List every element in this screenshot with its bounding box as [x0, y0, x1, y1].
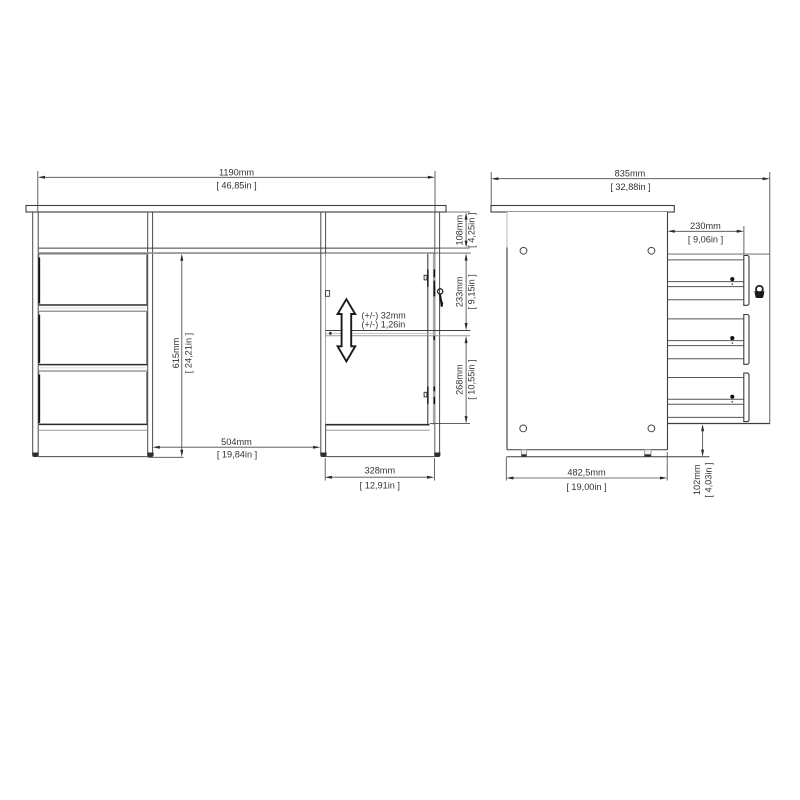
svg-text:[ 10,55in ]: [ 10,55in ] [467, 359, 477, 399]
svg-text:102mm: 102mm [692, 464, 702, 495]
svg-text:482,5mm: 482,5mm [567, 468, 606, 478]
svg-text:1190mm: 1190mm [219, 167, 254, 177]
svg-text:504mm: 504mm [221, 437, 252, 447]
svg-text:615mm: 615mm [171, 337, 181, 368]
svg-text:230mm: 230mm [690, 221, 721, 231]
svg-text:[ 19,00in ]: [ 19,00in ] [566, 482, 606, 492]
svg-text:108mm: 108mm [455, 215, 465, 246]
svg-text:(+/-) 1,26in: (+/-) 1,26in [362, 320, 406, 330]
svg-text:[ 24,21in ]: [ 24,21in ] [183, 333, 193, 373]
svg-text:[ 4,25in ]: [ 4,25in ] [467, 213, 477, 248]
svg-text:[ 9,15in ]: [ 9,15in ] [467, 274, 477, 309]
svg-text:328mm: 328mm [364, 466, 395, 476]
svg-text:[ 4,03in ]: [ 4,03in ] [704, 462, 714, 497]
svg-text:[ 46,85in ]: [ 46,85in ] [216, 181, 256, 191]
svg-text:[ 9,06in ]: [ 9,06in ] [688, 234, 723, 244]
svg-text:835mm: 835mm [615, 169, 646, 179]
svg-text:[ 19,84in ]: [ 19,84in ] [217, 449, 257, 459]
svg-text:[ 32,88in ]: [ 32,88in ] [610, 182, 650, 192]
svg-text:233mm: 233mm [455, 276, 465, 307]
svg-text:268mm: 268mm [455, 364, 465, 395]
svg-text:[ 12,91in ]: [ 12,91in ] [360, 480, 400, 490]
